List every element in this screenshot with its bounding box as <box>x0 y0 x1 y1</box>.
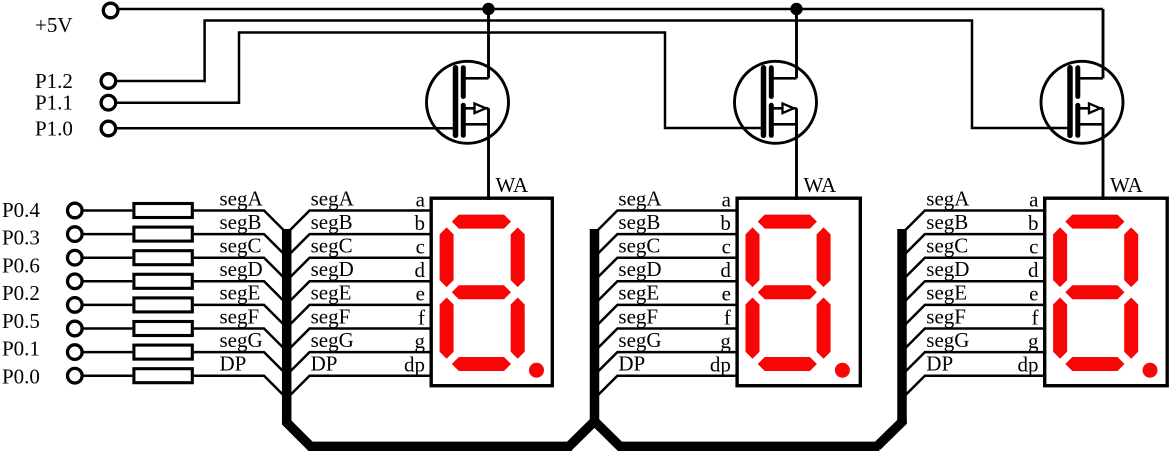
svg-text:DP: DP <box>926 352 953 376</box>
svg-text:segD: segD <box>926 257 969 281</box>
svg-text:segC: segC <box>220 234 262 258</box>
svg-text:f: f <box>724 305 731 329</box>
svg-text:b: b <box>1028 211 1039 235</box>
svg-text:g: g <box>720 329 731 353</box>
svg-text:segC: segC <box>618 234 660 258</box>
svg-text:segE: segE <box>311 281 352 305</box>
svg-text:P0.3: P0.3 <box>2 226 40 250</box>
svg-text:dp: dp <box>710 353 731 377</box>
svg-text:d: d <box>720 258 731 282</box>
svg-text:P0.1: P0.1 <box>2 337 40 361</box>
svg-text:a: a <box>722 187 732 211</box>
svg-text:f: f <box>1032 305 1039 329</box>
svg-text:segA: segA <box>618 186 662 210</box>
svg-text:g: g <box>415 329 426 353</box>
svg-text:DP: DP <box>220 352 247 376</box>
svg-text:segF: segF <box>311 304 351 328</box>
svg-text:segF: segF <box>926 304 966 328</box>
svg-text:P1.2: P1.2 <box>35 69 73 93</box>
svg-text:P0.5: P0.5 <box>2 309 40 333</box>
svg-text:e: e <box>722 282 731 306</box>
svg-text:segB: segB <box>618 210 660 234</box>
svg-text:segB: segB <box>926 210 968 234</box>
svg-text:dp: dp <box>1018 353 1039 377</box>
svg-text:g: g <box>1028 329 1039 353</box>
svg-text:P0.2: P0.2 <box>2 281 40 305</box>
svg-text:segA: segA <box>311 186 355 210</box>
svg-text:segE: segE <box>220 281 261 305</box>
svg-text:+5V: +5V <box>35 13 73 37</box>
svg-text:WA: WA <box>1110 173 1143 197</box>
svg-text:d: d <box>415 258 426 282</box>
svg-text:segG: segG <box>926 328 969 352</box>
svg-text:e: e <box>1029 282 1038 306</box>
svg-text:segE: segE <box>926 281 967 305</box>
svg-text:c: c <box>416 235 425 259</box>
svg-text:segG: segG <box>311 328 354 352</box>
svg-text:segG: segG <box>618 328 661 352</box>
svg-text:d: d <box>1028 258 1039 282</box>
svg-text:segC: segC <box>926 234 968 258</box>
svg-text:segA: segA <box>926 186 970 210</box>
svg-text:segF: segF <box>220 304 260 328</box>
svg-text:segD: segD <box>618 257 661 281</box>
svg-text:a: a <box>1029 187 1039 211</box>
svg-text:P0.0: P0.0 <box>2 364 40 388</box>
svg-text:P0.6: P0.6 <box>2 253 40 277</box>
svg-text:segB: segB <box>311 210 353 234</box>
svg-text:DP: DP <box>311 352 338 376</box>
svg-text:DP: DP <box>618 352 645 376</box>
svg-text:segD: segD <box>220 257 263 281</box>
svg-text:b: b <box>415 211 426 235</box>
svg-text:P0.4: P0.4 <box>2 198 40 222</box>
svg-text:segA: segA <box>220 186 264 210</box>
svg-text:P1.1: P1.1 <box>35 91 73 115</box>
svg-text:a: a <box>416 187 426 211</box>
svg-text:c: c <box>722 235 731 259</box>
svg-text:segC: segC <box>311 234 353 258</box>
svg-text:segF: segF <box>618 304 658 328</box>
svg-text:segB: segB <box>220 210 262 234</box>
svg-text:b: b <box>720 211 731 235</box>
svg-text:f: f <box>418 305 425 329</box>
svg-text:P1.0: P1.0 <box>35 117 73 141</box>
svg-text:WA: WA <box>496 173 529 197</box>
svg-text:segG: segG <box>220 328 263 352</box>
svg-text:segE: segE <box>618 281 659 305</box>
svg-text:e: e <box>416 282 425 306</box>
svg-text:segD: segD <box>311 257 354 281</box>
svg-text:WA: WA <box>804 173 837 197</box>
svg-text:c: c <box>1029 235 1038 259</box>
svg-text:dp: dp <box>404 353 425 377</box>
